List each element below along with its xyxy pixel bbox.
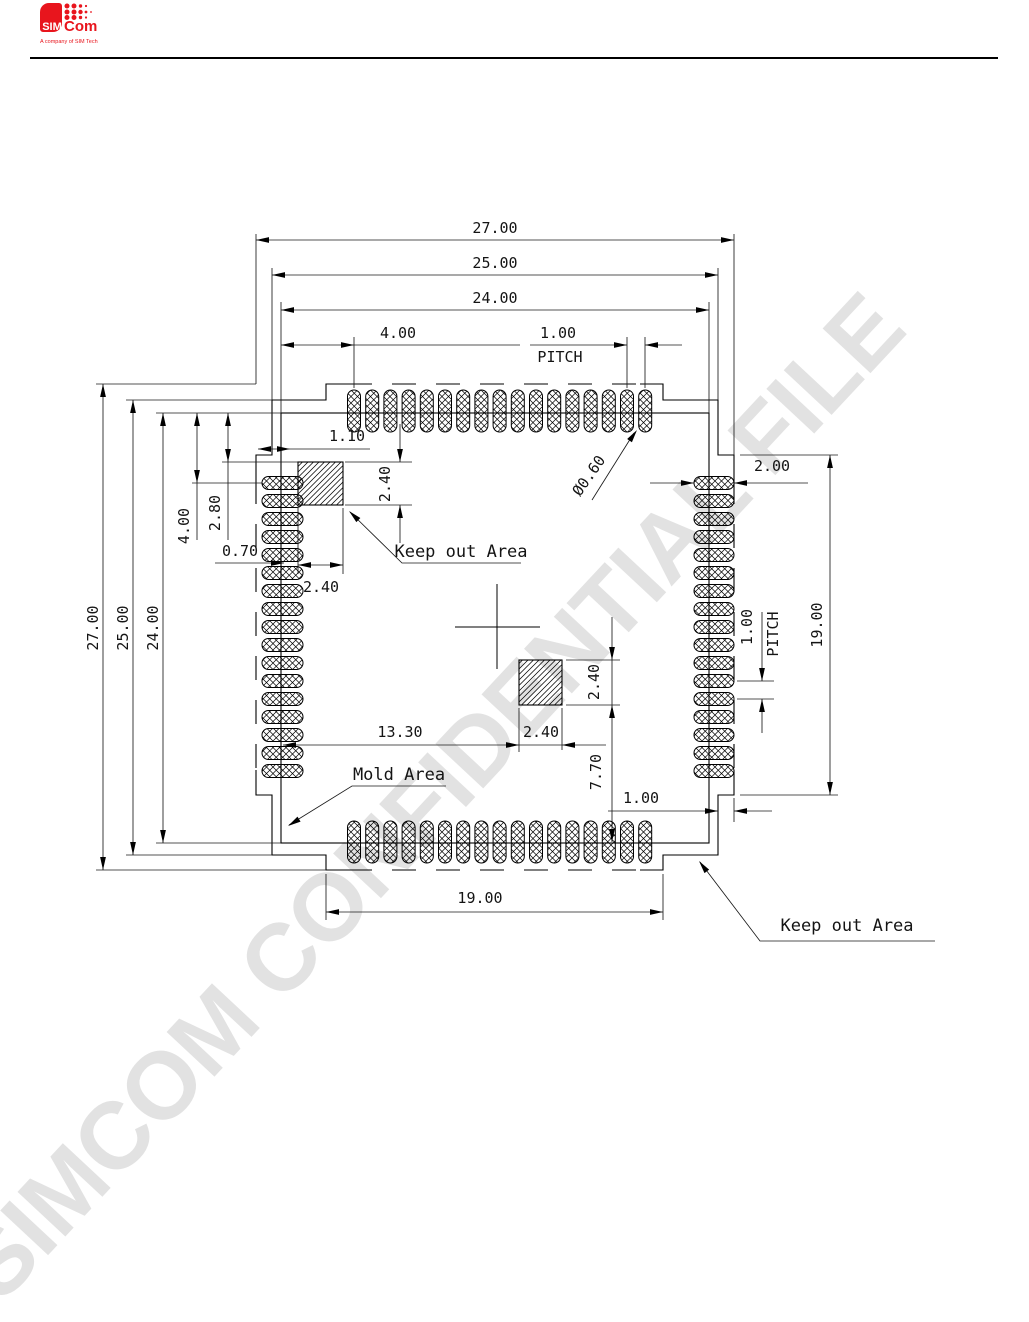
dim-top-pitch-label: PITCH [537,348,582,366]
dim-keepout1-width: 2.40 [303,578,339,596]
pad [602,821,615,863]
pad [694,693,734,706]
pad [420,390,433,432]
dim-keepout1-top-offset: 2.80 [206,495,224,531]
pad [457,821,470,863]
pad [621,821,634,863]
dim-right-pitch-label: PITCH [764,611,782,656]
page: SIMCOM CONFIDENTIAL FILE SIM Com A compa… [0,0,1029,1322]
dim-top-width-outer: 27.00 [472,219,517,237]
pad [262,657,303,670]
pad [694,585,734,598]
pad [262,729,303,742]
dim-pad-edge-offset: 0.70 [222,542,258,560]
pad [694,765,734,778]
label-keep-out-area-bottom: Keep out Area [780,916,913,936]
pad [457,390,470,432]
pad [366,390,379,432]
pad [639,821,652,863]
pad [621,390,634,432]
pad [602,390,615,432]
pad [402,821,415,863]
pad [639,390,652,432]
pad [262,513,303,526]
pad [530,821,543,863]
pad [566,821,579,863]
dim-right-pad-length: 2.00 [754,457,790,475]
dim-keepout1-height: 2.40 [376,466,394,502]
pad [262,477,303,490]
dim-left-height-inner: 24.00 [144,605,162,650]
keepout-square-center [519,660,562,705]
mold-area-outline [281,413,709,843]
pad [694,477,734,490]
pad [262,765,303,778]
dim-right-pitch: 1.00 [738,609,756,645]
dim-top-pitch: 1.00 [540,324,576,342]
dim-pad-inset: 1.10 [329,427,365,445]
pad [262,603,303,616]
pad [694,657,734,670]
pad [694,621,734,634]
keepout-square-top-left [298,462,343,505]
pad [402,390,415,432]
dim-top-width-inner: 24.00 [472,289,517,307]
pad [694,675,734,688]
pad [439,390,452,432]
pad [262,711,303,724]
pad [694,567,734,580]
pad [262,675,303,688]
pad [262,495,303,508]
pad [694,711,734,724]
pad [694,729,734,742]
pad [366,821,379,863]
dim-left-height-outer: 27.00 [84,605,102,650]
callout-labels: Keep out Area Mold Area Keep out Area [353,542,914,936]
pad [584,821,597,863]
dim-keepout2-bottom-offset: 7.70 [587,754,605,790]
pad [475,821,488,863]
pad [262,621,303,634]
dim-keepout2-offset-x: 13.30 [377,723,422,741]
label-keep-out-area-top: Keep out Area [394,542,527,562]
dim-right-edge-span: 19.00 [808,602,826,647]
dim-left-height-mid: 25.00 [114,605,132,650]
pad [262,567,303,580]
dim-keepout2-height: 2.40 [585,664,603,700]
label-mold-area: Mold Area [353,765,445,785]
pad [262,531,303,544]
dim-bottom-edge-span: 19.00 [457,889,502,907]
pad [348,390,361,432]
pad [530,390,543,432]
pad [420,821,433,863]
pad [348,821,361,863]
pad [493,821,506,863]
pad [262,639,303,652]
pad [694,495,734,508]
pad [384,821,397,863]
pad [548,821,561,863]
dim-bottom-corner-step: 1.00 [623,789,659,807]
pad [694,603,734,616]
pad [262,693,303,706]
dim-left-first-pad-offset: 4.00 [175,508,193,544]
pad [694,639,734,652]
center-cross [455,584,540,669]
pad [475,390,488,432]
pad [566,390,579,432]
pad [493,390,506,432]
pad [262,585,303,598]
pad [694,531,734,544]
pad [694,549,734,562]
pad [584,390,597,432]
dim-keepout2-width: 2.40 [523,723,559,741]
pad [511,821,524,863]
footprint-drawing: 27.00 25.00 24.00 4.00 1.00 PITCH 27.00 … [0,0,1029,1322]
dim-pad-hole-diameter: Ø0.60 [569,452,610,499]
dim-top-first-pad-offset: 4.00 [380,324,416,342]
pad [439,821,452,863]
pad [511,390,524,432]
pad [262,747,303,760]
pad [262,549,303,562]
pad [694,747,734,760]
dim-top-width-mid: 25.00 [472,254,517,272]
pad [694,513,734,526]
pad [384,390,397,432]
pad [548,390,561,432]
